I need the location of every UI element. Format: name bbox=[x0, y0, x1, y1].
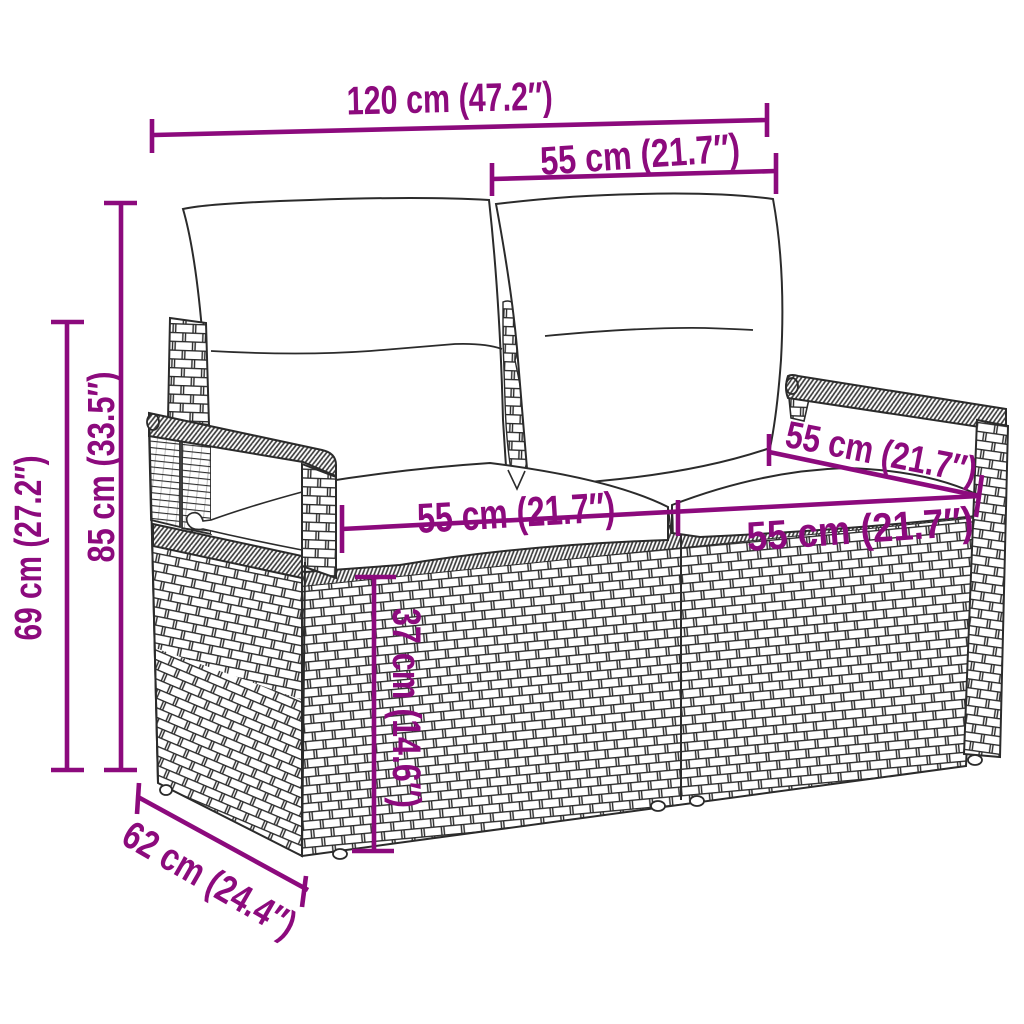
svg-text:85 cm (33.5″): 85 cm (33.5″) bbox=[81, 372, 123, 563]
svg-text:37 cm (14.6″): 37 cm (14.6″) bbox=[384, 608, 428, 808]
svg-text:69 cm (27.2″): 69 cm (27.2″) bbox=[8, 456, 50, 641]
svg-text:120 cm (47.2″): 120 cm (47.2″) bbox=[346, 74, 553, 123]
